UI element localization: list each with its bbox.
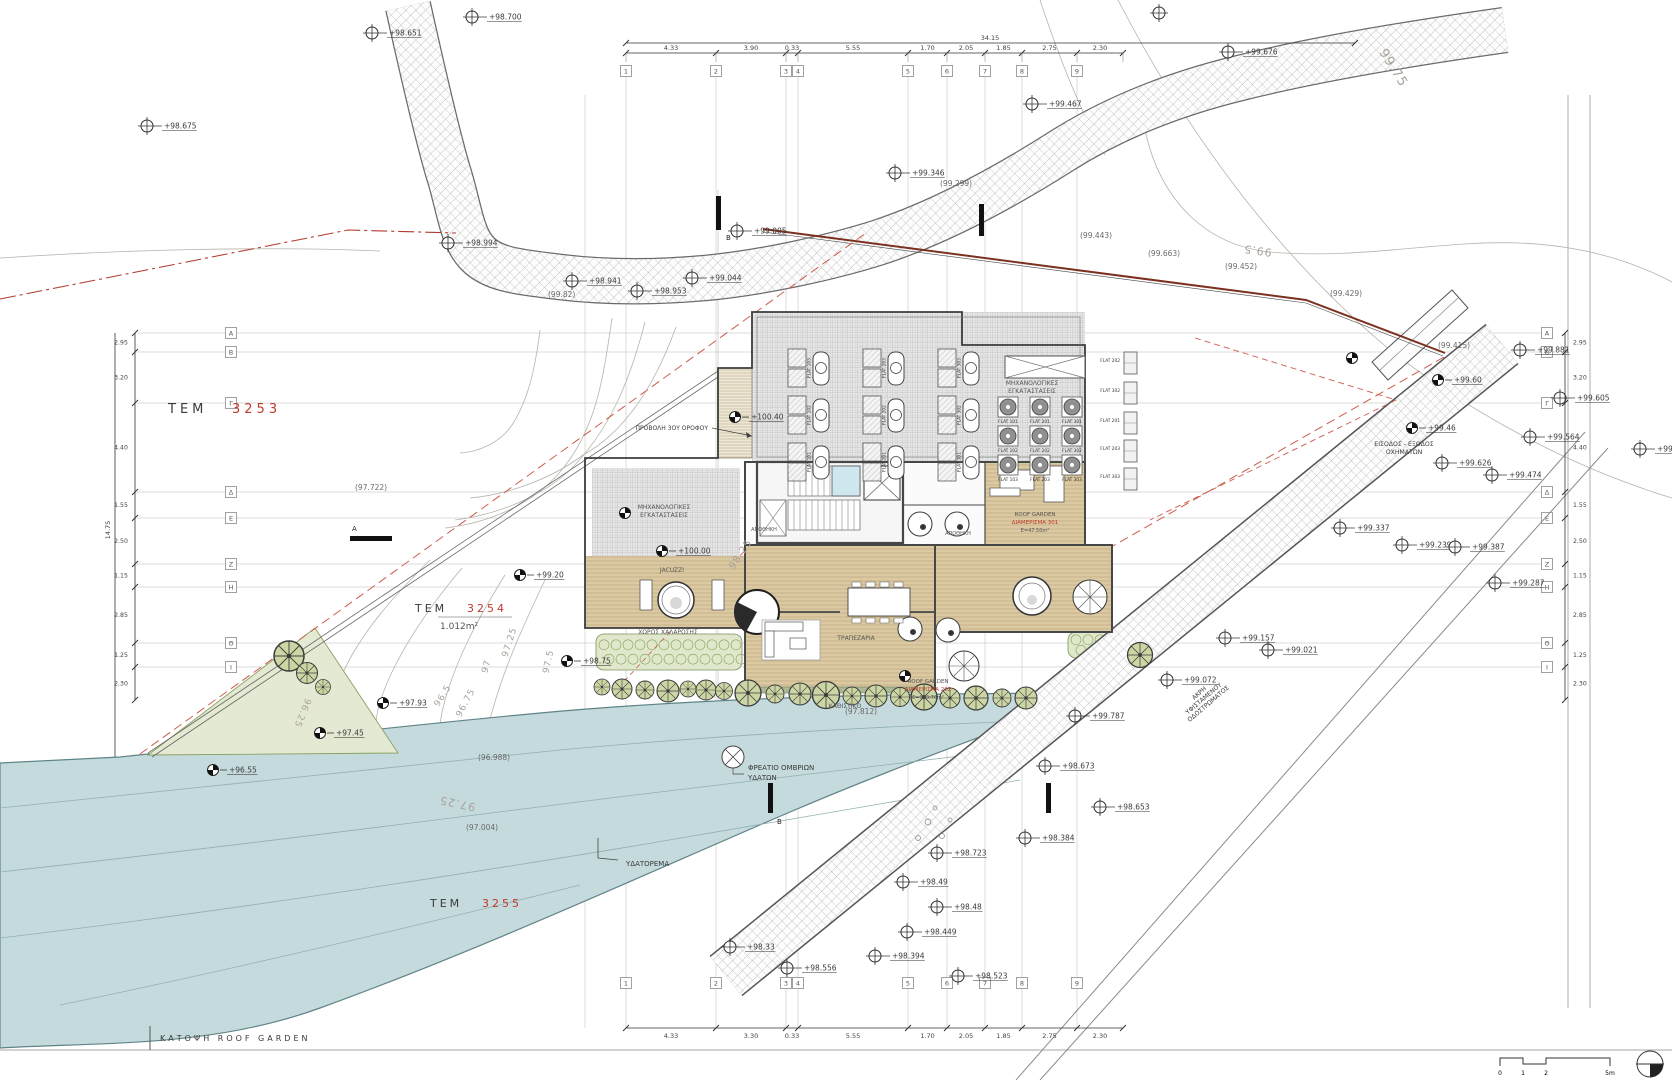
rg301-line3: Ε=47.50m² <box>1021 528 1050 534</box>
projection-label: ΠΡΟΒΟΛΗ 3ΟΥ ΟΡΟΦΟΥ <box>635 425 708 432</box>
svg-text:+98.33: +98.33 <box>747 943 775 952</box>
svg-text:Α: Α <box>229 329 234 337</box>
svg-text:2.95: 2.95 <box>1573 340 1587 347</box>
svg-text:+98.994: +98.994 <box>465 239 498 248</box>
grid-bubble-row-Θ: Θ <box>226 638 237 649</box>
grid-bubble-col-2: 2 <box>711 66 722 77</box>
spot-elevation-marker: +98.449 <box>898 923 957 941</box>
svg-text:+99.605: +99.605 <box>1577 394 1610 403</box>
svg-text:FLAT 303: FLAT 303 <box>1062 477 1082 483</box>
svg-text:Η: Η <box>1545 583 1550 591</box>
spot-elevation-marker: (99.443) <box>1080 231 1112 240</box>
spot-elevation-marker: +100.40 <box>730 412 784 423</box>
section-label-b2: Β <box>777 818 782 826</box>
svg-text:Ζ: Ζ <box>1545 560 1550 568</box>
svg-text:FLAT 202: FLAT 202 <box>1100 358 1120 364</box>
svg-text:2.50: 2.50 <box>114 538 128 545</box>
svg-text:4.40: 4.40 <box>1573 445 1587 452</box>
dining-table <box>848 588 910 616</box>
site-plan-drawing: 112233445566778899ΑΑΒΒΓΓΔΔΕΕΖΖΗΗΘΘΙΙ <box>0 0 1672 1080</box>
spot-elevation-marker: (99.82) <box>548 290 575 299</box>
svg-text:(96.988): (96.988) <box>478 753 510 762</box>
room-dining: ΤΡΑΠΕΖΑΡΙΑ <box>836 635 875 642</box>
svg-text:2.30: 2.30 <box>114 681 128 688</box>
svg-text:2.85: 2.85 <box>114 612 128 619</box>
svg-text:+99.676: +99.676 <box>1245 48 1278 57</box>
svg-text:Ε: Ε <box>229 514 233 522</box>
svg-text:+98.653: +98.653 <box>1117 803 1150 812</box>
spot-elevation-marker: +99.287 <box>1486 574 1545 592</box>
spot-elevation-marker: (96.988) <box>478 753 510 762</box>
spot-elevation-marker: +99.605 <box>1551 389 1610 407</box>
svg-text:+98.673: +98.673 <box>1062 762 1095 771</box>
ac-unit-east-edge: FLAT 303 <box>1100 468 1137 490</box>
drawing-title: ΚΑΤΟΨΗ ROOF GARDEN <box>160 1034 310 1043</box>
svg-text:14.75: 14.75 <box>104 521 112 540</box>
svg-text:+99.239: +99.239 <box>1419 541 1452 550</box>
svg-text:+97.45: +97.45 <box>336 729 364 738</box>
grid-bubble-col-6: 6 <box>942 978 953 989</box>
dim-chain-left: 2.953.204.401.552.501.152.851.252.3014.7… <box>104 330 138 757</box>
svg-text:8: 8 <box>1020 67 1024 75</box>
svg-text:FLAT 202: FLAT 202 <box>882 405 888 425</box>
svg-text:+98.556: +98.556 <box>804 964 837 973</box>
grid-bubble-row-Δ: Δ <box>1542 487 1553 498</box>
spot-elevation-marker: +96.55 <box>208 765 258 776</box>
room-mech-left-1: ΜΗΧΑΝΟΛΟΓΙΚΕΣ <box>638 504 691 511</box>
svg-text:Η: Η <box>229 583 234 591</box>
spiral-stair-lower <box>949 651 979 681</box>
grid-bubble-col-9: 9 <box>1072 66 1083 77</box>
svg-text:2.75: 2.75 <box>1042 1032 1056 1040</box>
grid-bubble-row-Γ: Γ <box>1542 398 1553 409</box>
grid-bubble-col-4: 4 <box>793 66 804 77</box>
grid-bubble-col-1: 1 <box>621 978 632 989</box>
svg-text:+98.651: +98.651 <box>389 29 422 38</box>
svg-text:1.55: 1.55 <box>114 502 128 509</box>
svg-text:4.33: 4.33 <box>664 44 678 52</box>
scale-1: 1 <box>1521 1070 1525 1077</box>
spot-elevation-marker: +99.021 <box>1259 641 1318 659</box>
ac-condenser-unit: FLAT 302 <box>1062 426 1082 454</box>
svg-text:(99.663): (99.663) <box>1148 249 1180 258</box>
spot-elevation-marker: +98.556 <box>778 959 837 977</box>
svg-text:+99.287: +99.287 <box>1512 579 1545 588</box>
svg-text:Β: Β <box>229 348 233 356</box>
spot-elevation-marker <box>620 508 631 519</box>
spot-elevation-marker: +99.005 <box>728 222 787 240</box>
grid-bubble-col-1: 1 <box>621 66 632 77</box>
svg-text:FLAT 302: FLAT 302 <box>1062 448 1082 454</box>
svg-text:3: 3 <box>784 979 788 987</box>
svg-text:Α: Α <box>1545 329 1550 337</box>
spot-elevation-marker: +98.48 <box>928 898 982 916</box>
section-label-b1: Β <box>726 234 731 242</box>
spot-elevation-marker <box>1347 353 1358 364</box>
plot-3254-area: 1.012m² <box>440 622 479 632</box>
svg-text:Θ: Θ <box>228 639 233 647</box>
grid-bubble-row-Ζ: Ζ <box>226 559 237 570</box>
spot-elevation-marker: +98.523 <box>949 967 1008 985</box>
svg-text:+98.941: +98.941 <box>589 277 622 286</box>
vehicle-access-2: ΟΧΗΜΑΤΩΝ <box>1386 449 1423 456</box>
spot-elevation-marker: +100.00 <box>657 546 711 557</box>
svg-text:2.95: 2.95 <box>114 340 128 347</box>
vehicle-access-1: ΕΙΣΟΔΟΣ - ΕΞΟΔΟΣ <box>1374 441 1433 448</box>
spot-elevation-marker: (99.299) <box>940 179 972 188</box>
grid-bubble-col-3: 3 <box>781 66 792 77</box>
svg-text:FLAT 203: FLAT 203 <box>1100 446 1120 452</box>
svg-text:1: 1 <box>624 979 628 987</box>
svg-text:Ι: Ι <box>1546 663 1548 671</box>
svg-text:4: 4 <box>796 979 800 987</box>
svg-text:(99.82): (99.82) <box>548 290 575 299</box>
spot-elevation-marker: (99.452) <box>1225 262 1257 271</box>
spot-elevation-marker: +98.673 <box>1036 757 1095 775</box>
svg-text:Ι: Ι <box>230 663 232 671</box>
svg-text:4: 4 <box>796 67 800 75</box>
grid-bubble-row-Α: Α <box>1542 328 1553 339</box>
grid-bubble-row-Θ: Θ <box>1542 638 1553 649</box>
svg-text:(97.722): (97.722) <box>355 483 387 492</box>
svg-text:2.75: 2.75 <box>1042 44 1056 52</box>
svg-text:1.25: 1.25 <box>114 652 128 659</box>
svg-text:4.40: 4.40 <box>114 445 128 452</box>
svg-text:5: 5 <box>906 67 910 75</box>
svg-text:(99.299): (99.299) <box>940 179 972 188</box>
room-jacuzzi: JACUZZI <box>659 567 684 574</box>
svg-text:+98.700: +98.700 <box>489 13 522 22</box>
ac-condenser-unit: FLAT 101 <box>998 397 1018 425</box>
svg-text:+99.157: +99.157 <box>1242 634 1275 643</box>
grid-bubble-row-Ζ: Ζ <box>1542 559 1553 570</box>
svg-text:(99.443): (99.443) <box>1080 231 1112 240</box>
svg-text:1.15: 1.15 <box>114 573 128 580</box>
grid-bubble-col-9: 9 <box>1072 978 1083 989</box>
ac-condenser-unit: FLAT 303 <box>1062 455 1082 483</box>
spiral-stair-right <box>1073 580 1107 614</box>
contour-label: 97 <box>480 659 493 675</box>
grid-bubble-col-5: 5 <box>903 66 914 77</box>
svg-text:+98.675: +98.675 <box>164 122 197 131</box>
ac-condenser-unit: FLAT 103 <box>998 455 1018 483</box>
room-mech-left-2: ΕΓΚΑΤΑΣΤΑΣΕΙΣ <box>640 512 688 519</box>
svg-text:2.05: 2.05 <box>959 1032 973 1040</box>
svg-text:34.15: 34.15 <box>981 34 1000 42</box>
svg-text:FLAT 203: FLAT 203 <box>882 358 888 378</box>
spot-elevation-marker: +99.564 <box>1521 428 1580 446</box>
rg202-line3: Ε=113.70m² <box>912 695 944 701</box>
svg-text:+99.044: +99.044 <box>709 274 742 283</box>
svg-text:0.33: 0.33 <box>785 1032 799 1040</box>
svg-text:3.90: 3.90 <box>744 44 758 52</box>
svg-text:+97.93: +97.93 <box>399 699 427 708</box>
svg-text:+99.46: +99.46 <box>1428 424 1456 433</box>
svg-text:+99.387: +99.387 <box>1472 543 1505 552</box>
svg-text:0.33: 0.33 <box>785 44 799 52</box>
svg-text:FLAT 102: FLAT 102 <box>998 448 1018 454</box>
svg-text:+99.787: +99.787 <box>1092 712 1125 721</box>
grid-bubble-row-Η: Η <box>226 582 237 593</box>
svg-text:+98.75: +98.75 <box>583 657 611 666</box>
svg-text:+99.467: +99.467 <box>1049 100 1082 109</box>
svg-text:FLAT 303: FLAT 303 <box>957 358 963 378</box>
road-band-north <box>408 6 1505 281</box>
svg-text:+99.474: +99.474 <box>1509 471 1542 480</box>
grid-bubble-col-2: 2 <box>711 978 722 989</box>
svg-text:6: 6 <box>945 67 949 75</box>
svg-text:FLAT 301: FLAT 301 <box>1062 419 1082 425</box>
svg-text:+99.072: +99.072 <box>1184 676 1217 685</box>
grid-bubble-row-Ι: Ι <box>226 662 237 673</box>
grid-bubble-row-Ι: Ι <box>1542 662 1553 673</box>
spot-elevation-marker: +99.467 <box>1023 95 1082 113</box>
spot-elevation-marker: +99.787 <box>1066 707 1125 725</box>
contour-label: 96.75 <box>455 687 478 719</box>
grid-bubble-row-Ε: Ε <box>226 513 237 524</box>
svg-text:FLAT 102: FLAT 102 <box>807 405 813 425</box>
svg-text:2: 2 <box>714 979 718 987</box>
svg-text:2.30: 2.30 <box>1573 681 1587 688</box>
svg-text:4.33: 4.33 <box>664 1032 678 1040</box>
svg-text:1.70: 1.70 <box>920 44 934 52</box>
svg-text:3: 3 <box>784 67 788 75</box>
room-mech-roof-1: ΜΗΧΑΝΟΛΟΓΙΚΕΣ <box>1006 380 1059 387</box>
svg-text:7: 7 <box>983 67 987 75</box>
dim-chain-bottom: 4.333.300.335.551.702.051.852.752.30 <box>623 1025 1126 1040</box>
skylight <box>1005 356 1085 378</box>
spot-elevation-marker: +98.675 <box>138 117 197 135</box>
spot-elevation-marker: +97.45 <box>315 728 365 739</box>
spot-elevation-marker: +99.52 <box>1631 440 1672 458</box>
svg-text:+98.523: +98.523 <box>975 972 1008 981</box>
svg-text:(97.004): (97.004) <box>466 823 498 832</box>
svg-text:2.30: 2.30 <box>1093 1032 1107 1040</box>
svg-text:3.30: 3.30 <box>744 1032 758 1040</box>
grid-bubble-col-4: 4 <box>793 978 804 989</box>
grid-bubble-col-8: 8 <box>1017 66 1028 77</box>
spot-elevation-marker: +99.387 <box>1446 538 1505 556</box>
ac-unit-east-edge: FLAT 302 <box>1100 382 1137 404</box>
ac-condenser-unit: FLAT 201 <box>1030 397 1050 425</box>
svg-text:+99.626: +99.626 <box>1459 459 1492 468</box>
grid-bubble-col-3: 3 <box>781 978 792 989</box>
svg-text:1: 1 <box>624 67 628 75</box>
svg-text:+99.564: +99.564 <box>1547 433 1580 442</box>
spot-elevation-marker: +99.072 <box>1158 671 1217 689</box>
spot-elevation-marker: (97.004) <box>466 823 498 832</box>
svg-text:FLAT 302: FLAT 302 <box>957 405 963 425</box>
spot-elevation-marker: (97.722) <box>355 483 387 492</box>
grid-bubble-col-5: 5 <box>903 978 914 989</box>
grid-bubble-row-Δ: Δ <box>226 487 237 498</box>
room-storage-2: ΑΠΟΘΗΚΗ <box>945 531 971 537</box>
svg-text:FLAT 201: FLAT 201 <box>1030 419 1050 425</box>
spot-elevation-marker: +99.881 <box>1511 341 1570 359</box>
contour-label: 96.5 <box>433 683 454 709</box>
svg-text:2.30: 2.30 <box>1093 44 1107 52</box>
svg-text:FLAT 201: FLAT 201 <box>882 452 888 472</box>
svg-text:+99.20: +99.20 <box>536 571 564 580</box>
room-mech-roof-2: ΕΓΚΑΤΑΣΤΑΣΕΙΣ <box>1008 388 1056 395</box>
svg-text:2.05: 2.05 <box>959 44 973 52</box>
ac-condenser-unit: FLAT 301 <box>1062 397 1082 425</box>
svg-text:3.20: 3.20 <box>1573 375 1587 382</box>
svg-text:Δ: Δ <box>229 488 234 496</box>
plot-3254-prefix: ΤΕΜ <box>414 602 447 615</box>
svg-text:FLAT 301: FLAT 301 <box>957 452 963 472</box>
spot-elevation-marker: +99.20 <box>515 570 565 581</box>
svg-text:+98.953: +98.953 <box>654 287 687 296</box>
svg-text:FLAT 302: FLAT 302 <box>1100 388 1120 394</box>
svg-text:+96.55: +96.55 <box>229 766 257 775</box>
grid-bubble-row-Ε: Ε <box>1542 513 1553 524</box>
svg-text:FLAT 101: FLAT 101 <box>807 452 813 472</box>
svg-text:+99.337: +99.337 <box>1357 524 1390 533</box>
ac-condenser-unit: FLAT 102 <box>998 426 1018 454</box>
grid-bubble-col-7: 7 <box>980 66 991 77</box>
svg-text:+98.384: +98.384 <box>1042 834 1075 843</box>
grid-bubble-row-Β: Β <box>226 347 237 358</box>
svg-text:1.15: 1.15 <box>1573 573 1587 580</box>
rg301-line1: ROOF GARDEN <box>1014 512 1055 518</box>
room-sitting: ΚΑΘΙΣΤΙΚΟ <box>829 703 862 710</box>
svg-text:+99.346: +99.346 <box>912 169 945 178</box>
plot-3255-number: 3255 <box>482 897 522 910</box>
spot-elevation-marker: +99.46 <box>1407 423 1457 434</box>
ac-condenser-unit: FLAT 203 <box>1030 455 1050 483</box>
spot-elevation-marker: +99.626 <box>1433 454 1492 472</box>
plot-3253-number: 3253 <box>232 402 281 417</box>
svg-text:(99.452): (99.452) <box>1225 262 1257 271</box>
spot-elevation-marker: +98.49 <box>894 873 948 891</box>
scale-bar: 0 1 2 5m <box>1498 1058 1615 1077</box>
svg-text:+99.60: +99.60 <box>1454 376 1482 385</box>
svg-text:1.25: 1.25 <box>1573 652 1587 659</box>
spot-elevation-marker: +99.346 <box>886 164 945 182</box>
svg-text:1.85: 1.85 <box>996 1032 1010 1040</box>
grid-bubble-col-8: 8 <box>1017 978 1028 989</box>
svg-text:FLAT 103: FLAT 103 <box>998 477 1018 483</box>
plot-3253-prefix: ΤΕΜ <box>167 402 207 417</box>
scale-5: 5m <box>1605 1070 1615 1077</box>
svg-text:(99.429): (99.429) <box>1330 289 1362 298</box>
svg-text:FLAT 101: FLAT 101 <box>998 419 1018 425</box>
svg-text:(99.415): (99.415) <box>1438 341 1470 350</box>
scale-0: 0 <box>1498 1070 1502 1077</box>
spot-elevation-marker: +97.93 <box>378 698 428 709</box>
svg-text:+98.723: +98.723 <box>954 849 987 858</box>
svg-text:FLAT 103: FLAT 103 <box>807 358 813 378</box>
rg202-line1: ROOF GARDEN <box>907 679 948 685</box>
svg-text:+99.005: +99.005 <box>754 227 787 236</box>
spot-elevation-marker: +98.75 <box>562 656 612 667</box>
svg-text:8: 8 <box>1020 979 1024 987</box>
spot-elevation-marker: +98.394 <box>866 947 925 965</box>
section-label-a: Α <box>352 525 357 533</box>
spot-elevation-marker: +98.653 <box>1091 798 1150 816</box>
storm-drain-label-2: ΥΔΑΤΩΝ <box>747 774 777 782</box>
svg-text:+99.52: +99.52 <box>1657 445 1672 454</box>
watercourse-label: ΥΔΑΤΟΡΕΜΑ <box>625 860 669 868</box>
contour-label: 97.5 <box>542 649 557 675</box>
spot-elevation-marker: +98.700 <box>463 8 522 26</box>
spot-elevation-marker <box>1150 4 1168 22</box>
svg-text:2: 2 <box>714 67 718 75</box>
spot-elevation-marker: +99.239 <box>1393 536 1452 554</box>
plot-3255-prefix: ΤΕΜ <box>429 897 462 910</box>
svg-text:+98.449: +98.449 <box>924 928 957 937</box>
svg-text:9: 9 <box>1075 67 1079 75</box>
spot-elevation-marker: +99.60 <box>1433 375 1483 386</box>
svg-text:3.20: 3.20 <box>114 375 128 382</box>
svg-text:Ζ: Ζ <box>229 560 234 568</box>
rg202-line2: ΔΙΑΜΕΡΙΣΜΑ 202 <box>905 687 952 693</box>
svg-text:9: 9 <box>1075 979 1079 987</box>
spot-elevation-marker: +99.474 <box>1483 466 1542 484</box>
ac-condenser-unit: FLAT 202 <box>1030 426 1050 454</box>
svg-text:+100.40: +100.40 <box>751 413 784 422</box>
svg-text:Δ: Δ <box>1545 488 1550 496</box>
svg-text:2.85: 2.85 <box>1573 612 1587 619</box>
scale-2: 2 <box>1544 1070 1548 1077</box>
svg-text:FLAT 201: FLAT 201 <box>1100 418 1120 424</box>
grid-bubble-col-6: 6 <box>942 66 953 77</box>
svg-text:1.55: 1.55 <box>1573 502 1587 509</box>
spot-elevation-marker: +98.384 <box>1016 829 1075 847</box>
svg-text:+98.49: +98.49 <box>920 878 948 887</box>
ac-unit-east-edge: FLAT 202 <box>1100 352 1137 374</box>
svg-text:FLAT 303: FLAT 303 <box>1100 474 1120 480</box>
room-relax: ΧΩΡΟΣ ΧΑΛΑΡΩΣΗΣ <box>638 629 698 636</box>
rg301-line2: ΔΙΑΜΕΡΙΣΜΑ 301 <box>1012 520 1059 526</box>
spot-elevation-marker: +99.337 <box>1331 519 1390 537</box>
svg-text:1.85: 1.85 <box>996 44 1010 52</box>
contour-label: 99.5 <box>1242 242 1272 259</box>
spot-elevation-marker: (99.663) <box>1148 249 1180 258</box>
svg-text:2.50: 2.50 <box>1573 538 1587 545</box>
svg-text:+100.00: +100.00 <box>678 547 711 556</box>
svg-text:Γ: Γ <box>1545 399 1549 407</box>
svg-text:+98.394: +98.394 <box>892 952 925 961</box>
spot-elevation-marker: (99.429) <box>1330 289 1362 298</box>
north-arrow-icon <box>1636 1051 1664 1077</box>
ac-unit-east-edge: FLAT 203 <box>1100 440 1137 462</box>
svg-text:+98.48: +98.48 <box>954 903 982 912</box>
svg-text:FLAT 202: FLAT 202 <box>1030 448 1050 454</box>
svg-text:FLAT 203: FLAT 203 <box>1030 477 1050 483</box>
svg-text:5: 5 <box>906 979 910 987</box>
plot-3254-number: 3254 <box>467 602 507 615</box>
svg-text:+99.021: +99.021 <box>1285 646 1318 655</box>
svg-text:1.70: 1.70 <box>920 1032 934 1040</box>
site-plan-canvas: 112233445566778899ΑΑΒΒΓΓΔΔΕΕΖΖΗΗΘΘΙΙ <box>0 0 1672 1080</box>
svg-text:Θ: Θ <box>1544 639 1549 647</box>
svg-text:6: 6 <box>945 979 949 987</box>
spot-elevation-marker: (99.415) <box>1438 341 1470 350</box>
svg-text:5.55: 5.55 <box>846 44 860 52</box>
room-storage-1: ΑΠΟΘΗΚΗ <box>751 527 777 533</box>
ac-unit-east-edge: FLAT 201 <box>1100 412 1137 434</box>
grid-bubble-row-Α: Α <box>226 328 237 339</box>
storm-drain-label-1: ΦΡΕΑΤΙΟ ΟΜΒΡΙΩΝ <box>748 764 814 772</box>
svg-text:5.55: 5.55 <box>846 1032 860 1040</box>
dim-chain-right: 2.953.204.401.552.501.152.851.252.30 <box>1562 330 1587 703</box>
spot-elevation-marker: +98.723 <box>928 844 987 862</box>
